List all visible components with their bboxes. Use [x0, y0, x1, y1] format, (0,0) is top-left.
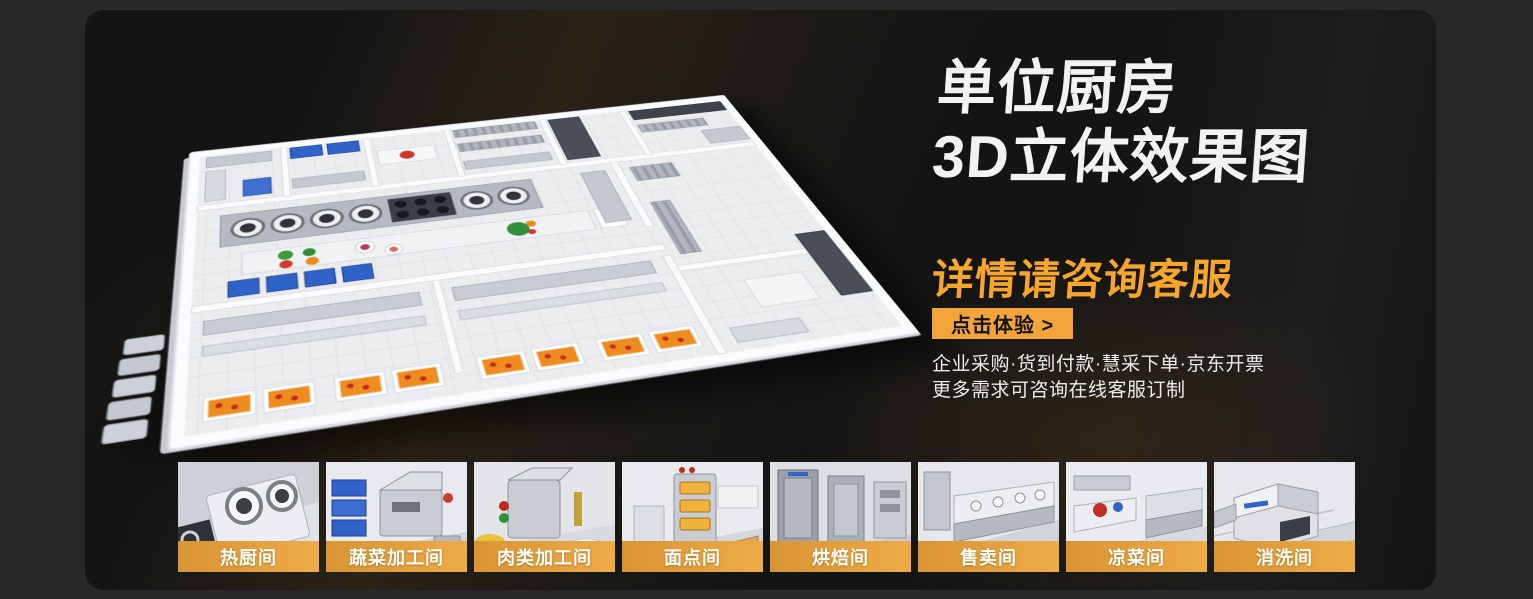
- thumbnail-pastry-room[interactable]: 面点间: [622, 462, 763, 572]
- thumbnail-strip: 热厨间 蔬菜加工间: [178, 462, 1355, 572]
- thumbnail-cold-dish-room[interactable]: 凉菜间: [1066, 462, 1207, 572]
- banner-page: 单位厨房 3D立体效果图 详情请咨询客服 点击体验 > 企业采购·货到付款·慧采…: [0, 0, 1533, 599]
- title-line-1: 单位厨房: [935, 54, 1317, 123]
- promo-subtitle: 详情请咨询客服: [930, 246, 1235, 307]
- thumbnail-vegetable-processing[interactable]: 蔬菜加工间: [326, 462, 467, 572]
- cta-button[interactable]: 点击体验 >: [932, 308, 1073, 339]
- thumb-label-baking-room: 烘焙间: [770, 541, 911, 572]
- thumb-label-meat-processing: 肉类加工间: [474, 541, 615, 572]
- promo-banner-card: 单位厨房 3D立体效果图 详情请咨询客服 点击体验 > 企业采购·货到付款·慧采…: [85, 10, 1436, 590]
- thumbnail-washing-room[interactable]: 消洗间: [1214, 462, 1355, 572]
- thumbnail-sales-room[interactable]: 售卖间: [918, 462, 1059, 572]
- title-line-2: 3D立体效果图: [930, 123, 1312, 192]
- page-title: 单位厨房 3D立体效果图: [930, 54, 1317, 192]
- info-line-1: 企业采购·货到付款·慧采下单·京东开票: [932, 352, 1264, 377]
- thumbnail-hot-kitchen[interactable]: 热厨间: [178, 462, 319, 572]
- kitchen-3d-floorplan: [137, 10, 857, 476]
- thumb-label-cold-dish-room: 凉菜间: [1066, 541, 1207, 572]
- trolley-stack: [102, 334, 165, 444]
- thumbnail-meat-processing[interactable]: 肉类加工间: [474, 462, 615, 572]
- thumb-label-washing-room: 消洗间: [1214, 541, 1355, 572]
- thumb-label-hot-kitchen: 热厨间: [178, 541, 319, 572]
- floorplan-drawing: [97, 93, 923, 466]
- thumb-label-vegetable-processing: 蔬菜加工间: [326, 541, 467, 572]
- thumbnail-baking-room[interactable]: 烘焙间: [770, 462, 911, 572]
- thumb-label-pastry-room: 面点间: [622, 541, 763, 572]
- thumb-label-sales-room: 售卖间: [918, 541, 1059, 572]
- info-line-2: 更多需求可咨询在线客服订制: [932, 378, 1186, 403]
